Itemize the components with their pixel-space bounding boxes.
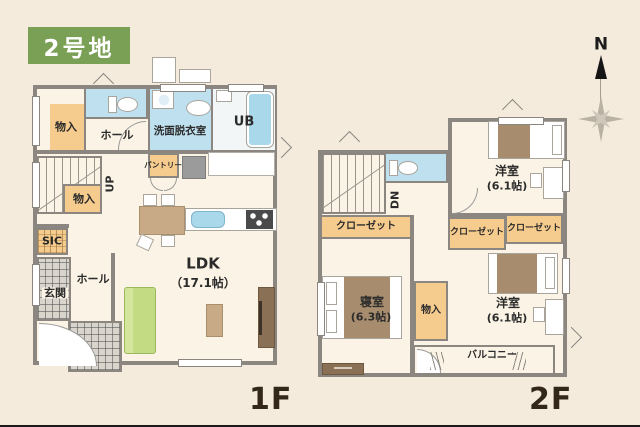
desk-2f-north [543,167,564,199]
water-heater-unit [152,57,176,83]
label-western-north-name: 洋室 [495,165,519,177]
dresser-2f-handle [334,367,352,369]
desk-2f-south [545,299,564,335]
label-ldk-name: LDK [186,257,220,272]
toilet-bowl-2f-icon [398,161,418,175]
bed-2f-north-blanket [498,122,530,158]
vent-chevron-2f-toilet [339,131,360,152]
stove-1f [246,210,273,229]
lot-badge: 2号地 [28,27,130,64]
window-1f-left-entrance [32,264,40,306]
bed-2f-south-pillow [545,257,555,289]
window-1f-bottom-ldk [178,359,242,367]
label-closet-2f-east-b: クローゼット [507,225,561,234]
tv-screen-1f [259,301,262,335]
washing-machine-1f [186,100,211,116]
dining-chair-3 [161,235,175,247]
label-bedroom-name: 寝室 [360,296,384,308]
chair-2f-north [530,173,542,188]
dining-chair-2 [161,194,175,206]
label-ldk-size: （17.1帖） [170,277,236,289]
toilet-tank-1f [108,96,117,113]
bed-2f-bedroom-pillow-1 [326,282,337,305]
label-closet-2f-east-a: クローゼット [450,229,504,238]
floor-plan-page: 2号地 N [0,0,640,427]
washbasin-1f [152,90,174,109]
floor1-label: 1F [249,382,292,417]
sofa-1f [124,287,156,354]
label-stairs-down-2f: DN [390,191,401,209]
label-stairs-up-1f: UP [105,176,116,193]
balcony-hatch-left [430,352,444,370]
floor2-label: 2F [529,382,572,417]
wall-hall-ldk [111,253,115,324]
label-storage-1f-top: 物入 [55,122,77,133]
label-balcony-2f: バルコニー [467,351,517,361]
stairs-2f [321,153,386,214]
window-2f-right-south [562,258,570,294]
compass-north-label: N [594,37,608,54]
label-hall-1f-entrance: ホール [77,274,110,285]
dining-table-1f [139,206,185,235]
bed-2f-bedroom-pillow-2 [326,310,337,333]
window-2f-north-room [498,117,544,125]
window-1f-top-bath [228,84,264,92]
window-1f-left-storage [32,96,40,146]
bed-2f-south-blanket [497,254,537,293]
label-western-south-size: (6.1帖) [487,313,528,324]
label-western-north-size: (6.1帖) [487,181,528,192]
label-closet-2f-bedroom: クローゼット [336,222,396,232]
dresser-2f-bedroom [322,363,364,375]
window-2f-left-bedroom [317,282,325,336]
window-1f-left-stairs [32,162,40,208]
label-bedroom-size: (6.3帖) [351,312,392,323]
back-counter-1f [208,152,275,176]
lot-badge-label: 2号地 [43,29,114,63]
window-2f-right-north [562,160,570,192]
ac-outdoor-unit [179,69,211,83]
label-storage-2f: 物入 [421,306,441,316]
bed-2f-north-pillow [552,125,562,155]
label-pantry-1f: パントリー [144,161,182,169]
kitchen-sink-1f [191,211,225,228]
label-entrance-1f: 玄関 [42,288,68,299]
refrigerator-1f [182,156,206,179]
toilet-tank-2f [389,160,398,176]
toilet-bowl-1f-icon [117,97,138,112]
label-bath-1f: UB [234,116,254,129]
compass: N [560,28,640,148]
chair-2f-south [533,307,545,322]
window-1f-top-washroom [160,84,206,92]
north-arrow-icon [595,55,607,79]
label-sic-1f: SIC [42,236,62,247]
label-hall-1f-top: ホール [101,130,134,141]
label-storage-1f-stairs: 物入 [73,194,95,205]
label-washroom-1f: 洗面脱衣室 [154,126,207,137]
label-western-south-name: 洋室 [496,297,520,309]
coffee-table-1f [206,304,223,337]
stairs-2f-diagonal [321,162,386,212]
dining-chair-1 [143,194,157,206]
